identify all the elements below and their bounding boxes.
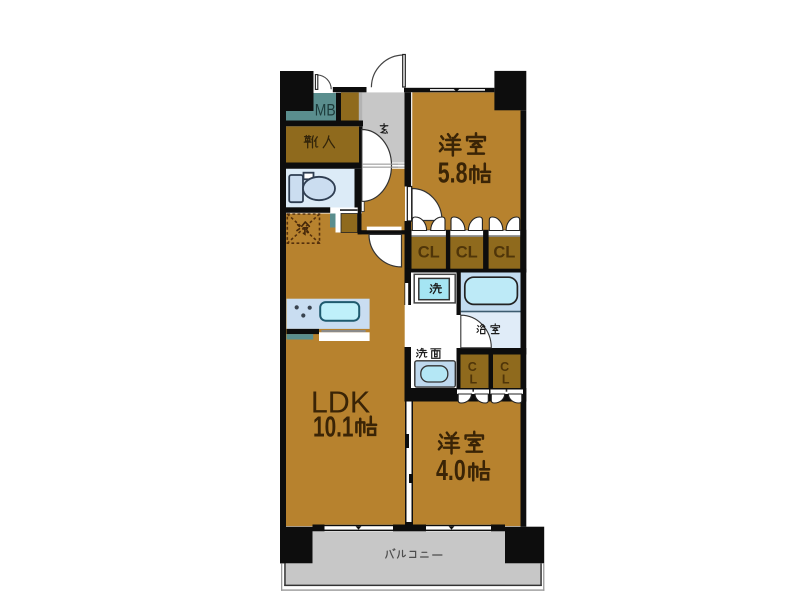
svg-text:MB: MB — [315, 101, 336, 120]
svg-text:4.0: 4.0 — [436, 455, 466, 487]
svg-text:10.1: 10.1 — [313, 411, 354, 443]
svg-text:CL: CL — [493, 244, 515, 262]
svg-text:L: L — [502, 373, 510, 387]
svg-text:L: L — [469, 373, 477, 387]
svg-text:5.8: 5.8 — [438, 158, 468, 190]
svg-text:CL: CL — [418, 244, 440, 262]
svg-text:CL: CL — [456, 244, 478, 262]
